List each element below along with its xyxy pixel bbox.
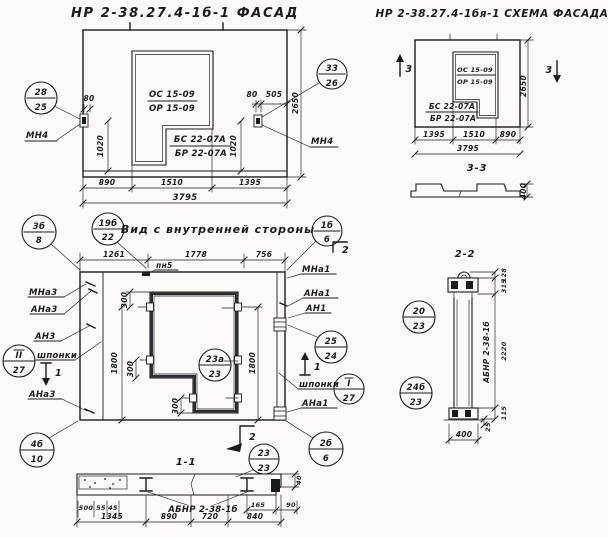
aggregate-dot xyxy=(94,482,96,484)
label-ana1-2: АНа1 xyxy=(301,399,329,409)
dim-25: 25 xyxy=(484,422,492,432)
frame-anchor xyxy=(147,303,154,311)
dim-400: 400 xyxy=(456,430,473,439)
callout-bottom: 6 xyxy=(323,454,329,464)
dim-300-top: 300 xyxy=(120,292,129,309)
dim-500: 500 xyxy=(79,504,94,512)
dim-1020-right: 1020 xyxy=(229,135,238,157)
pn5-label: пн5 xyxy=(156,261,172,270)
edge-plate-lower xyxy=(274,407,286,420)
frame-anchor xyxy=(235,303,242,311)
inner-dimension-lines xyxy=(80,253,285,420)
panel-section-inner xyxy=(457,300,469,406)
frame-anchor xyxy=(190,394,197,402)
callout-top: I xyxy=(347,379,350,389)
facade-anchor-left-core xyxy=(82,117,86,124)
facade-title: НР 2-38.27.4-1б-1 ФАСАД xyxy=(71,6,299,21)
callout-top: 23 xyxy=(258,449,270,459)
callout-bottom: 24 xyxy=(325,352,337,362)
dim-505: 505 xyxy=(266,90,283,99)
frame-anchor xyxy=(147,356,154,364)
callout-top: 25 xyxy=(325,337,337,347)
aggregate-dot xyxy=(89,486,91,488)
callout-top: 4б xyxy=(30,439,43,450)
panel-mark-label-vertical: АБНР 2-38-1б xyxy=(482,321,491,384)
frame-anchor xyxy=(235,356,242,364)
label-ana3-2: АНа3 xyxy=(28,390,56,400)
aggregate-dot xyxy=(104,478,106,480)
plate-to-strip xyxy=(454,292,472,298)
scheme-window-mark-bottom: ОР 15-09 xyxy=(457,78,493,86)
section-1-label-left: 1 xyxy=(55,368,62,379)
section-2-arrow-bottom xyxy=(226,443,242,452)
section-3-3-profile xyxy=(411,184,520,197)
label-ana1: АНа1 xyxy=(303,289,331,299)
dim-80-left: 80 xyxy=(83,94,94,103)
dim-1395: 1395 xyxy=(239,178,261,187)
dim-1395: 1395 xyxy=(423,130,445,139)
callout-bottom: 23 xyxy=(258,464,270,474)
callout-bottom: 23 xyxy=(209,370,221,380)
profile-end-block xyxy=(271,479,280,492)
dim-115: 115 xyxy=(500,406,508,421)
callout-bottom: 25 xyxy=(35,103,47,113)
dim-3795: 3795 xyxy=(457,144,479,153)
section-2-label-top: 2 xyxy=(342,245,349,256)
top-plate-core xyxy=(451,281,458,289)
scheme-window-mark-top: ОС 15-09 xyxy=(457,66,493,74)
dim-90: 90 xyxy=(286,501,296,509)
section-2-label-bottom: 2 xyxy=(249,432,256,443)
break-line xyxy=(191,474,195,495)
section-3-arrow-left xyxy=(396,54,404,62)
label-an3: АН3 xyxy=(34,332,56,342)
callout-top: 24б xyxy=(407,382,426,393)
section-2-2-title: 2-2 xyxy=(455,249,475,260)
callout-bottom: 6 xyxy=(324,235,330,245)
anchor-dashes xyxy=(85,282,287,413)
callout-top: 3б xyxy=(33,221,45,232)
dim-3795: 3795 xyxy=(173,193,198,203)
ibeam-anchors xyxy=(140,478,253,491)
callout-top: 19б xyxy=(99,218,118,229)
dim-890: 890 xyxy=(500,130,517,139)
section-3-arrow-right xyxy=(553,75,561,83)
facade-anchor-right-core xyxy=(256,118,260,124)
dim-300-mid: 300 xyxy=(126,361,135,378)
callout-top: 23а xyxy=(206,355,224,365)
dim-315: 315 xyxy=(500,279,508,294)
facade-lifting-loops xyxy=(130,23,223,30)
callout-bottom: 26 xyxy=(326,79,338,89)
inner-view: Вид с внутренней стороны 3б 8 19б 22 1б … xyxy=(3,213,364,467)
section-1-label-right: 1 xyxy=(314,362,321,373)
dim-1020-left: 1020 xyxy=(96,135,105,157)
dim-1510: 1510 xyxy=(161,178,183,187)
scheme-view: НР 2-38.27.4-1бя-1 СХЕМА ФАСАДА ОС 15-09… xyxy=(375,8,608,200)
callout-bottom: 27 xyxy=(343,394,355,404)
dim-890: 890 xyxy=(99,178,116,187)
label-shponki-left: шпонки xyxy=(37,351,77,361)
callout-bottom: 22 xyxy=(102,233,114,243)
dim-756: 756 xyxy=(256,250,273,259)
label-mn4-right: МН4 xyxy=(311,137,333,147)
inner-title: Вид с внутренней стороны xyxy=(121,223,315,236)
pn5-plate xyxy=(142,272,150,276)
callout-top: 1б xyxy=(321,220,333,231)
section-1-1-view: 1-1 23 23 АБНР 2-38-1б 500 55 45 1345 89… xyxy=(74,444,303,527)
bottom-shoe-core xyxy=(465,410,471,417)
section-1-mark-left xyxy=(41,363,51,378)
callout-bottom: 23 xyxy=(413,322,425,332)
label-mna3: МНа3 xyxy=(29,288,57,298)
callout-bottom: 10 xyxy=(31,455,43,465)
dim-2220: 2220 xyxy=(500,341,508,360)
facade-door-mark-bottom: БР 22-07А xyxy=(175,149,227,159)
label-mn4-left: МН4 xyxy=(26,131,48,141)
dim-1800-right: 1800 xyxy=(248,352,257,374)
section-3-label-left: 3 xyxy=(406,64,413,75)
aggregate-dot xyxy=(119,479,121,481)
label-an1: АН1 xyxy=(305,304,327,314)
section-1-arrow-right xyxy=(301,352,309,360)
aggregate-dot xyxy=(109,487,111,489)
aggregate-dot xyxy=(84,479,86,481)
aggregate-dot xyxy=(112,483,114,485)
dim-400: 400 xyxy=(519,183,528,200)
facade-window-mark-bottom: ОР 15-09 xyxy=(149,104,195,114)
dim-55: 55 xyxy=(96,504,106,512)
callout-top: 2б xyxy=(320,438,332,449)
drawing-sheet: НР 2-38.27.4-1б-1 ФАСАД ОС 15-09 ОР 15-0… xyxy=(0,0,608,537)
profile-left-block xyxy=(79,476,127,489)
dim-840: 840 xyxy=(247,512,264,521)
top-plate-core xyxy=(466,281,473,289)
section-3-3-title: 3-3 xyxy=(467,163,487,174)
label-mna1: МНа1 xyxy=(302,265,330,275)
dim-1261: 1261 xyxy=(103,250,125,259)
bottom-shoe-core xyxy=(452,410,458,417)
section-1-1-title: 1-1 xyxy=(176,457,196,468)
edge-plate-upper xyxy=(274,318,286,331)
section-1-1-profile xyxy=(77,474,281,495)
scheme-title: НР 2-38.27.4-1бя-1 СХЕМА ФАСАДА xyxy=(375,8,608,20)
dim-45: 45 xyxy=(108,504,118,512)
callout-bottom: 27 xyxy=(13,366,25,376)
dim-1345: 1345 xyxy=(101,512,123,521)
dim-40: 40 xyxy=(295,475,303,485)
dim-165: 165 xyxy=(251,501,266,509)
dim-1778: 1778 xyxy=(185,250,207,259)
dim-80-right: 80 xyxy=(246,90,257,99)
facade-door-mark-top: БС 22-07А xyxy=(174,135,226,145)
facade-window-mark-top: ОС 15-09 xyxy=(149,90,195,100)
dim-890: 890 xyxy=(161,512,178,521)
callout-top: 28 xyxy=(35,88,47,98)
section-3-label-right: 3 xyxy=(546,65,553,76)
label-ana3: АНа3 xyxy=(30,305,58,315)
facade-dimension-lines xyxy=(83,30,306,208)
scheme-door-mark-top: БС 22-07А xyxy=(429,102,475,111)
facade-view: НР 2-38.27.4-1б-1 ФАСАД ОС 15-09 ОР 15-0… xyxy=(25,6,347,208)
callout-top: II xyxy=(16,351,23,361)
section-1-arrow-left xyxy=(42,378,50,386)
callout-bottom: 23 xyxy=(410,398,422,408)
dim-2650: 2650 xyxy=(519,75,528,97)
dim-300-bot: 300 xyxy=(171,398,180,415)
drawing-canvas: НР 2-38.27.4-1б-1 ФАСАД ОС 15-09 ОР 15-0… xyxy=(0,0,608,537)
dim-1800-left: 1800 xyxy=(110,352,119,374)
dim-1510: 1510 xyxy=(463,130,485,139)
dim-720: 720 xyxy=(202,512,219,521)
label-shponki-right: шпонки xyxy=(299,380,339,390)
section-1-mark-right xyxy=(300,360,310,375)
section-2-2-view: 2-2 128 315 2220 115 25 400 АБНР 2-38-1б… xyxy=(400,249,508,444)
profile-detail xyxy=(459,191,461,197)
callout-top: 20 xyxy=(413,307,425,317)
callout-top: 33 xyxy=(326,64,338,74)
callout-bottom: 8 xyxy=(36,236,42,246)
leader-lines xyxy=(148,470,253,505)
